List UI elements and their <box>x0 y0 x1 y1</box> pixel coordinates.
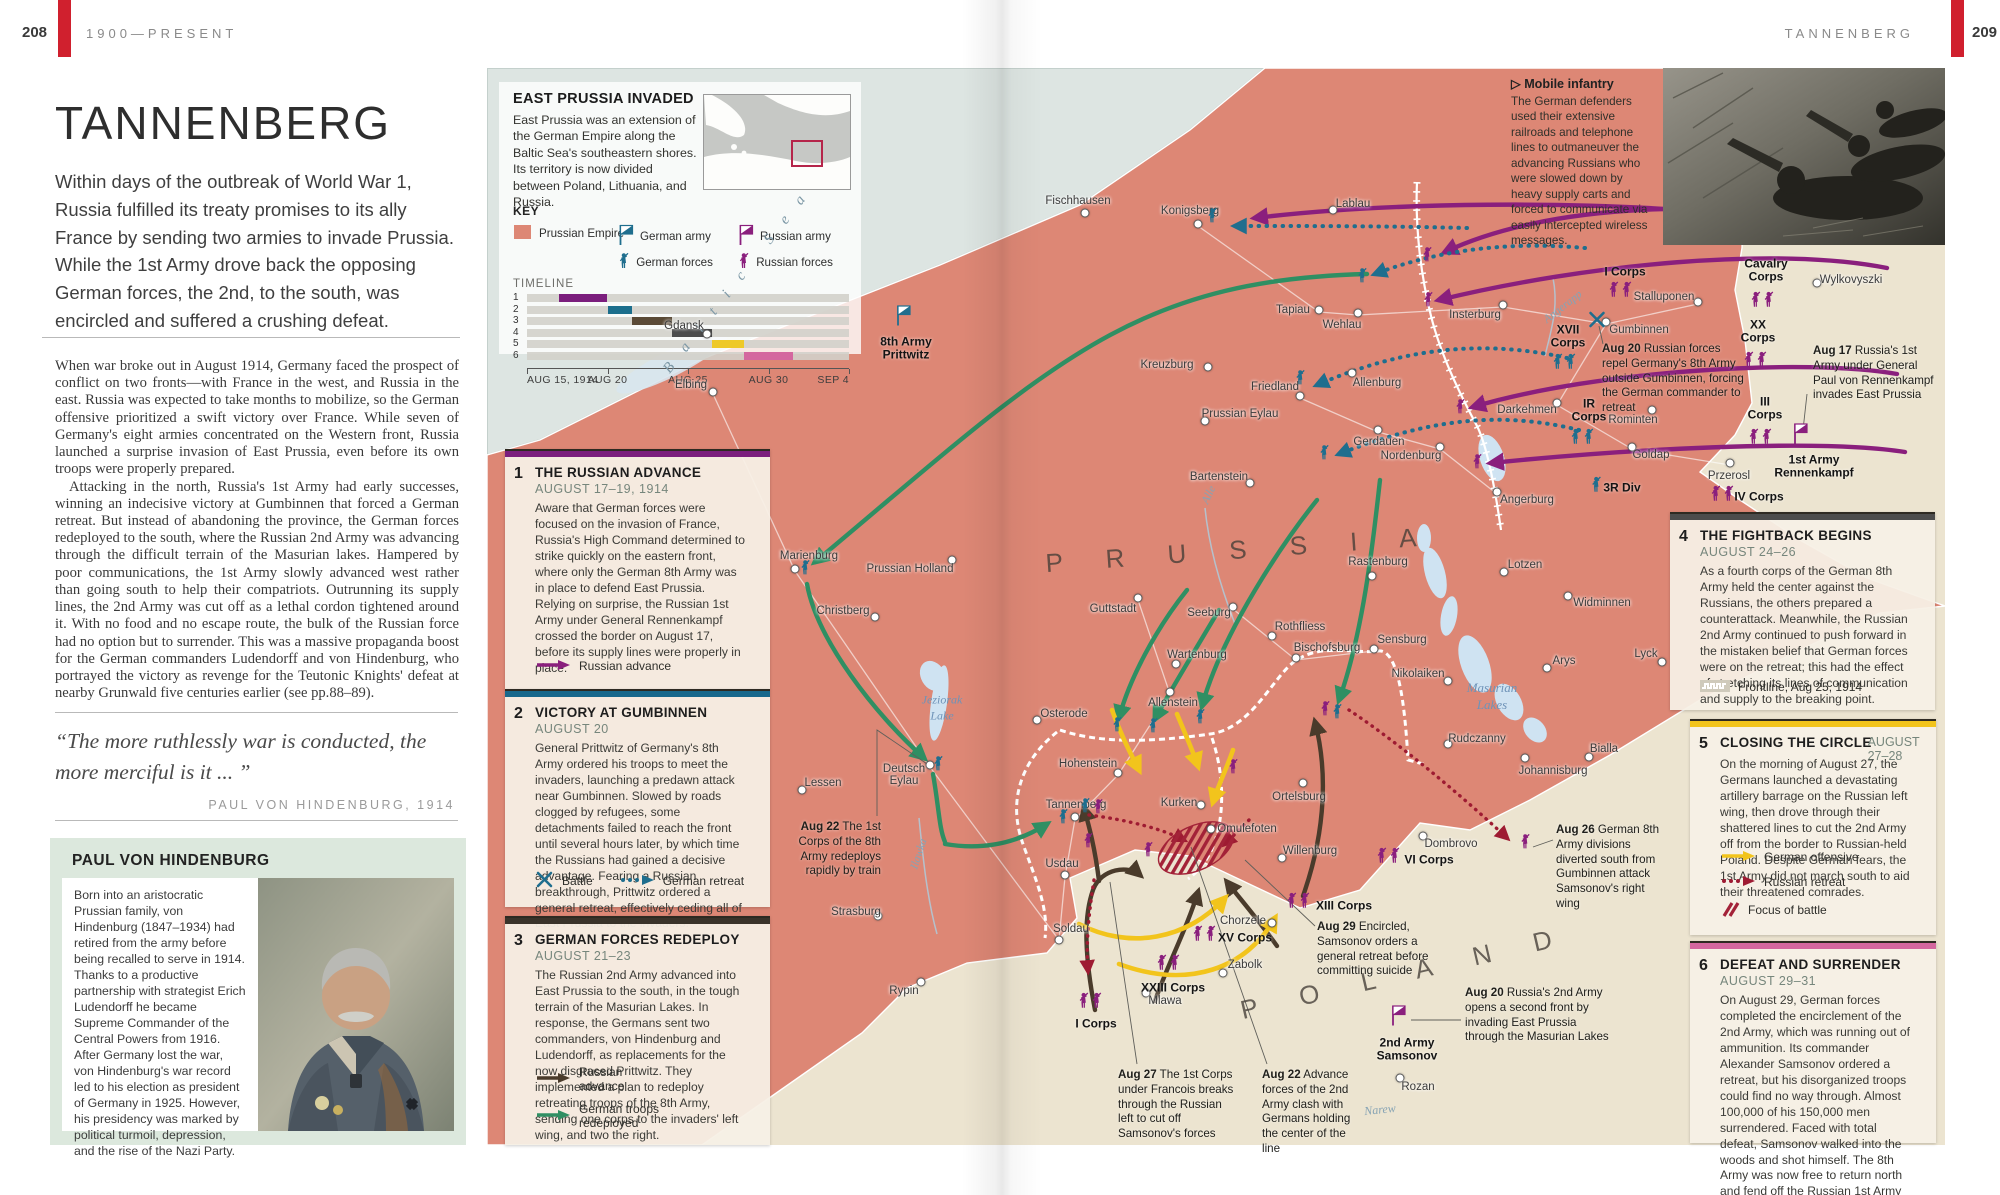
book-spread: 208 1900—PRESENT TANNENBERG 209 TANNENBE… <box>0 0 2000 1195</box>
callout-title: THE FIGHTBACK BEGINS <box>1700 528 1872 543</box>
unit-label: XVII Corps <box>1551 324 1586 351</box>
callout-number: 2 <box>514 705 523 723</box>
map-label: Angerapp <box>1541 288 1584 325</box>
map-annotation: Aug 20 Russia's 2nd Army opens a second … <box>1465 986 1609 1045</box>
bio-text-panel: Born into an aristocratic Prussian famil… <box>62 878 258 1131</box>
town-label: Przerosl <box>1708 470 1750 482</box>
town-dot <box>1166 688 1175 697</box>
arrow-dotted-icon <box>619 874 655 890</box>
german-soldier-icon <box>1111 716 1124 738</box>
callout-accent-band <box>1670 512 1935 520</box>
town-dot <box>1061 871 1070 880</box>
german-soldier-icon <box>799 559 812 581</box>
legend-item: German troops redeployed <box>535 1103 659 1131</box>
quote-attribution: PAUL VON HINDENBURG, 1914 <box>55 798 455 812</box>
corps-icon <box>1285 892 1311 915</box>
unit-label: I Corps <box>1604 265 1645 278</box>
divider <box>55 712 458 713</box>
right-running-header: TANNENBERG <box>1785 26 1914 41</box>
body-text: When war broke out in August 1914, Germa… <box>55 358 459 702</box>
town-dot <box>1292 654 1301 663</box>
town-label: Bartenstein <box>1190 471 1248 483</box>
town-dot <box>1444 677 1453 686</box>
town-label: Deutsch Eylau <box>883 763 925 787</box>
battle-x-icon <box>1588 310 1607 334</box>
town-label: Fischhausen <box>1045 195 1110 207</box>
callout-box-3: 3 GERMAN FORCES REDEPLOY AUGUST 21–23 Th… <box>505 916 770 1145</box>
town-label: Prussian Eylau <box>1202 408 1279 420</box>
town-label: Christberg <box>816 605 869 617</box>
town-label: Rudczanny <box>1448 733 1506 745</box>
corps-icon <box>1589 476 1602 499</box>
legend-item: Frontline, Aug 25, 1914 <box>1700 680 1862 696</box>
map-annotation: Aug 20 Russian forces repel Germany's 8t… <box>1602 342 1746 416</box>
town-label: Sensburg <box>1377 634 1426 646</box>
callout-legend: Frontline, Aug 25, 1914 <box>1700 680 1915 696</box>
legend-item-label: Focus of battle <box>1748 904 1827 918</box>
annotation-date: Aug 27 <box>1118 1068 1157 1081</box>
callout-legend: German offensiveRussian retreatFocus of … <box>1720 850 1916 921</box>
callout-accent-band <box>505 689 770 697</box>
unit-label: XV Corps <box>1218 931 1272 944</box>
legend-item-label: German retreat <box>663 875 744 889</box>
callout-accent-band <box>505 916 770 924</box>
unit-label: III Corps <box>1748 396 1783 423</box>
legend-item: Russian advance <box>535 1066 624 1094</box>
legend-item-label: Russian advance <box>579 1066 624 1094</box>
map-label: B a l t i c S e a <box>660 187 814 377</box>
hindenburg-portrait <box>258 878 454 1131</box>
german-soldier-icon <box>1147 717 1160 739</box>
russian-soldier-icon <box>1319 700 1332 722</box>
map-annotation: Aug 22 Advance forces of the 2nd Army cl… <box>1262 1068 1358 1157</box>
callout-number: 4 <box>1679 528 1688 546</box>
town-dot <box>1374 426 1383 435</box>
town-label: Zabolk <box>1228 959 1263 971</box>
callout-text: General Prittwitz of Germany's 8th Army … <box>535 741 748 932</box>
town-label: Lablau <box>1336 198 1371 210</box>
map-annotation: Aug 29 Encircled, Samsonov orders a gene… <box>1317 920 1449 979</box>
town-label: Hohenstein <box>1059 758 1117 770</box>
corps-icon <box>1375 847 1401 870</box>
town-dot <box>1207 825 1216 834</box>
corps-icon <box>1569 428 1595 451</box>
frontline-icon <box>1700 680 1730 696</box>
town-label: Wylkovyszki <box>1820 274 1883 286</box>
annotation-text: Advance forces of the 2nd Army clash wit… <box>1262 1068 1350 1155</box>
town-label: Chorzele <box>1220 915 1266 927</box>
map-annotation: Aug 27 The 1st Corps under Francois brea… <box>1118 1068 1236 1142</box>
town-dot <box>1194 220 1203 229</box>
callout-date: AUGUST 24–26 <box>1700 545 1796 559</box>
body-paragraph-1: When war broke out in August 1914, Germa… <box>55 358 459 479</box>
unit-label: 8th Army Prittwitz <box>880 336 932 363</box>
town-label: Lessen <box>804 777 841 789</box>
town-label: Friedland <box>1251 381 1299 393</box>
town-label: Bialla <box>1590 743 1618 755</box>
town-dot <box>1694 298 1703 307</box>
town-label: Allenburg <box>1353 377 1402 389</box>
annotation-date: Aug 26 <box>1556 823 1595 836</box>
callout-title: GERMAN FORCES REDEPLOY <box>535 932 740 947</box>
town-label: Lotzen <box>1508 559 1543 571</box>
town-label: Mlawa <box>1148 995 1181 1007</box>
town-label: Willenburg <box>1283 845 1337 857</box>
callout-legend: Russian advanceGerman troops redeployed <box>535 1066 750 1131</box>
town-dot <box>1081 209 1090 218</box>
town-dot <box>1204 363 1213 372</box>
arrow-icon <box>535 1109 571 1125</box>
callout-box-4: 4 THE FIGHTBACK BEGINS AUGUST 24–26 As a… <box>1670 512 1935 710</box>
map-annotation: Aug 17 Russia's 1st Army under General P… <box>1813 344 1935 403</box>
bio-text: Born into an aristocratic Prussian famil… <box>62 878 258 1170</box>
map-label: Narew <box>1364 1101 1397 1119</box>
russian-soldier-icon <box>1092 798 1105 820</box>
town-label: Allenstein <box>1148 697 1198 709</box>
divider <box>55 820 458 821</box>
town-label: Wehlau <box>1323 319 1362 331</box>
callout-title: THE RUSSIAN ADVANCE <box>535 465 701 480</box>
legend-item-label: Russian retreat <box>1764 876 1845 890</box>
callout-number: 3 <box>514 932 523 950</box>
town-dot <box>871 613 880 622</box>
town-label: Omulefoten <box>1217 823 1276 835</box>
russian-soldier-icon <box>1471 453 1484 475</box>
map-label: Ilawka <box>908 837 929 870</box>
legend-item: German retreat <box>619 870 744 893</box>
town-dot <box>1726 459 1735 468</box>
map-annotation: Aug 22 The 1st Corps of the 8th Army red… <box>793 820 881 879</box>
town-dot <box>1354 309 1363 318</box>
town-label: Soldau <box>1053 923 1089 935</box>
battle-x-icon <box>535 870 554 893</box>
army-flag-icon <box>1792 423 1809 450</box>
town-label: Elbing <box>675 379 707 391</box>
town-dot <box>1521 754 1530 763</box>
corps-icon <box>1551 353 1577 376</box>
town-label: Rypin <box>889 985 918 997</box>
annotation-date: Aug 29 <box>1317 920 1356 933</box>
town-label: Wartenburg <box>1167 649 1227 661</box>
town-label: Goldap <box>1632 449 1669 461</box>
left-running-header: 1900—PRESENT <box>86 26 237 41</box>
unit-label: 3R Div <box>1603 481 1640 494</box>
callout-title: DEFEAT AND SURRENDER <box>1720 957 1901 972</box>
town-label: Widminnen <box>1573 597 1631 609</box>
town-dot <box>1055 936 1064 945</box>
legend-item-label: Battle <box>562 875 593 889</box>
legend-item-label: Frontline, Aug 25, 1914 <box>1738 681 1862 695</box>
corps-icon <box>1709 485 1735 508</box>
russian-soldier-icon <box>1421 246 1434 268</box>
map-annotation: Aug 26 German 8th Army divisions diverte… <box>1556 823 1670 912</box>
town-label: Bischofsburg <box>1294 642 1360 654</box>
german-soldier-icon <box>1318 444 1331 466</box>
town-dot <box>1564 592 1573 601</box>
corps-icon <box>1191 925 1217 948</box>
callout-title: CLOSING THE CIRCLE <box>1720 735 1872 750</box>
town-dot <box>1543 664 1552 673</box>
town-label: Gumbinnen <box>1609 324 1668 336</box>
legend-item: Focus of battle <box>1720 901 1827 921</box>
callout-number: 1 <box>514 465 523 483</box>
russian-soldier-icon <box>1082 832 1095 854</box>
body-paragraph-2: Attacking in the north, Russia's 1st Arm… <box>55 479 459 703</box>
page-title: TANNENBERG <box>55 96 391 150</box>
left-page-number: 208 <box>22 24 47 41</box>
town-label: Ortelsburg <box>1272 791 1326 803</box>
town-label: Guttstadt <box>1090 603 1137 615</box>
town-label: Arys <box>1553 655 1576 667</box>
town-dot <box>1658 658 1667 667</box>
bio-title: PAUL VON HINDENBURG <box>72 852 270 870</box>
callout-accent-band <box>1690 941 1936 949</box>
town-label: Rothfliess <box>1275 621 1326 633</box>
german-soldier-icon <box>1194 708 1207 730</box>
town-label: Gerdauen <box>1353 436 1404 448</box>
map-label: P R U S S I A <box>1045 521 1436 579</box>
legend-item-label: Russian advance <box>579 660 671 674</box>
town-label: Usdau <box>1045 858 1078 870</box>
town-label: Osterode <box>1040 708 1087 720</box>
town-label: Rozan <box>1401 1081 1434 1093</box>
annotation-date: Aug 20 <box>1465 986 1504 999</box>
german-soldier-icon <box>1079 797 1092 819</box>
callout-number: 5 <box>1699 735 1708 753</box>
corps-icon <box>1077 992 1103 1015</box>
bio-box: PAUL VON HINDENBURG Born into an aristoc… <box>50 838 466 1145</box>
corps-icon <box>1749 291 1775 314</box>
legend-item-label: German offensive <box>1764 851 1859 865</box>
town-label: Darkehmen <box>1497 404 1556 416</box>
callout-box-6: 6 DEFEAT AND SURRENDER AUGUST 29–31 On A… <box>1690 941 1936 1143</box>
russian-soldier-icon <box>1519 833 1532 855</box>
town-dot <box>1197 801 1206 810</box>
town-label: Nordenburg <box>1381 450 1442 462</box>
town-label: Lyck <box>1634 648 1657 660</box>
legend-item: German offensive <box>1720 850 1859 866</box>
army-flag-icon <box>895 305 912 332</box>
town-dot <box>709 388 718 397</box>
corps-icon <box>1607 281 1633 304</box>
legend-item-label: German troops redeployed <box>579 1103 659 1131</box>
hatch-icon <box>1720 901 1740 921</box>
callout-text: On August 29, German forces completed th… <box>1720 993 1914 1195</box>
arrow-icon <box>535 1072 571 1088</box>
unit-label: I Corps <box>1075 1017 1116 1030</box>
corps-icon <box>1747 428 1773 451</box>
russian-soldier-icon <box>1422 291 1435 313</box>
town-label: Nikolaiken <box>1391 668 1444 680</box>
russian-soldier-icon <box>1454 398 1467 420</box>
annotation-text: German 8th Army divisions diverted south… <box>1556 823 1659 910</box>
unit-label: XXIII Corps <box>1141 981 1205 994</box>
town-label: Prussian Holland <box>867 563 954 575</box>
legend-item: Russian advance <box>535 659 671 675</box>
callout-date: AUGUST 21–23 <box>535 949 631 963</box>
german-soldier-icon <box>1206 207 1219 229</box>
unit-label: 1st Army Rennenkampf <box>1774 454 1853 481</box>
town-label: Stalluponen <box>1634 291 1695 303</box>
arrow-icon <box>535 659 571 675</box>
town-label: Kreuzburg <box>1140 359 1193 371</box>
town-label: Rastenburg <box>1348 556 1407 568</box>
town-label: Dombrovo <box>1424 838 1477 850</box>
town-label: Angerburg <box>1500 494 1554 506</box>
russian-soldier-icon <box>1142 841 1155 863</box>
german-soldier-icon <box>1294 369 1307 391</box>
annotation-date: Aug 17 <box>1813 344 1852 357</box>
legend-item: Russian retreat <box>1720 875 1845 891</box>
callout-box-2: 2 VICTORY AT GUMBINNEN AUGUST 20 General… <box>505 689 770 907</box>
annotation-date: Aug 20 <box>1602 342 1641 355</box>
divider <box>42 337 460 338</box>
callout-text: Aware that German forces were focused on… <box>535 501 748 676</box>
arrow-icon <box>1720 850 1756 866</box>
corps-icon <box>1155 954 1181 977</box>
town-label: Strasburg <box>831 906 881 918</box>
arrow-dotted-icon <box>1720 875 1756 891</box>
left-accent-bar <box>58 0 71 57</box>
right-accent-bar <box>1951 0 1964 57</box>
russian-soldier-icon <box>1227 758 1240 780</box>
unit-label: XIII Corps <box>1316 899 1372 912</box>
legend-item: Battle <box>535 870 593 893</box>
unit-label: 2nd Army Samsonov <box>1377 1037 1438 1064</box>
unit-label: VI Corps <box>1404 853 1453 866</box>
town-label: Johannisburg <box>1518 765 1587 777</box>
army-flag-icon <box>1390 1005 1407 1032</box>
callout-accent-band <box>505 449 770 457</box>
pull-quote: “The more ruthlessly war is conducted, t… <box>55 726 455 787</box>
town-dot <box>1219 969 1228 978</box>
callout-box-1: 1 THE RUSSIAN ADVANCE AUGUST 17–19, 1914… <box>505 449 770 689</box>
callout-legend: BattleGerman retreat <box>535 870 750 893</box>
callout-box-5: 5 CLOSING THE CIRCLE AUGUST 27–28 On the… <box>1690 719 1936 935</box>
town-label: Kurken <box>1161 797 1197 809</box>
callout-date: AUGUST 29–31 <box>1720 974 1816 988</box>
town-dot <box>1315 306 1324 315</box>
town-label: Gdansk <box>664 320 704 332</box>
german-soldier-icon <box>932 755 945 777</box>
map-label: Alle <box>1200 484 1219 506</box>
annotation-date: Aug 22 <box>1262 1068 1301 1081</box>
unit-label: Cavalry Corps <box>1744 258 1787 285</box>
callout-title: VICTORY AT GUMBINNEN <box>535 705 707 720</box>
callout-date: AUGUST 20 <box>535 722 609 736</box>
town-dot <box>1368 572 1377 581</box>
german-soldier-icon <box>1356 267 1369 289</box>
callout-date: AUGUST 17–19, 1914 <box>535 482 669 496</box>
map-label: Masurian Lakes <box>1467 680 1518 714</box>
map-label: Jeziorak Lake <box>922 692 963 723</box>
callout-number: 6 <box>1699 957 1708 975</box>
town-label: Seeburg <box>1187 607 1230 619</box>
town-label: Tapiau <box>1276 304 1310 316</box>
right-page-number: 209 <box>1972 24 1997 41</box>
town-dot <box>1268 919 1277 928</box>
intro-paragraph: Within days of the outbreak of World War… <box>55 168 460 335</box>
callout-accent-band <box>1690 719 1936 727</box>
unit-label: IV Corps <box>1734 490 1783 503</box>
german-soldier-icon <box>1331 703 1344 725</box>
town-dot <box>1134 594 1143 603</box>
annotation-date: Aug 22 <box>801 820 840 833</box>
german-soldier-icon <box>1057 808 1070 830</box>
town-label: Insterburg <box>1449 309 1501 321</box>
town-dot <box>1299 779 1308 788</box>
callout-legend: Russian advance <box>535 659 750 675</box>
